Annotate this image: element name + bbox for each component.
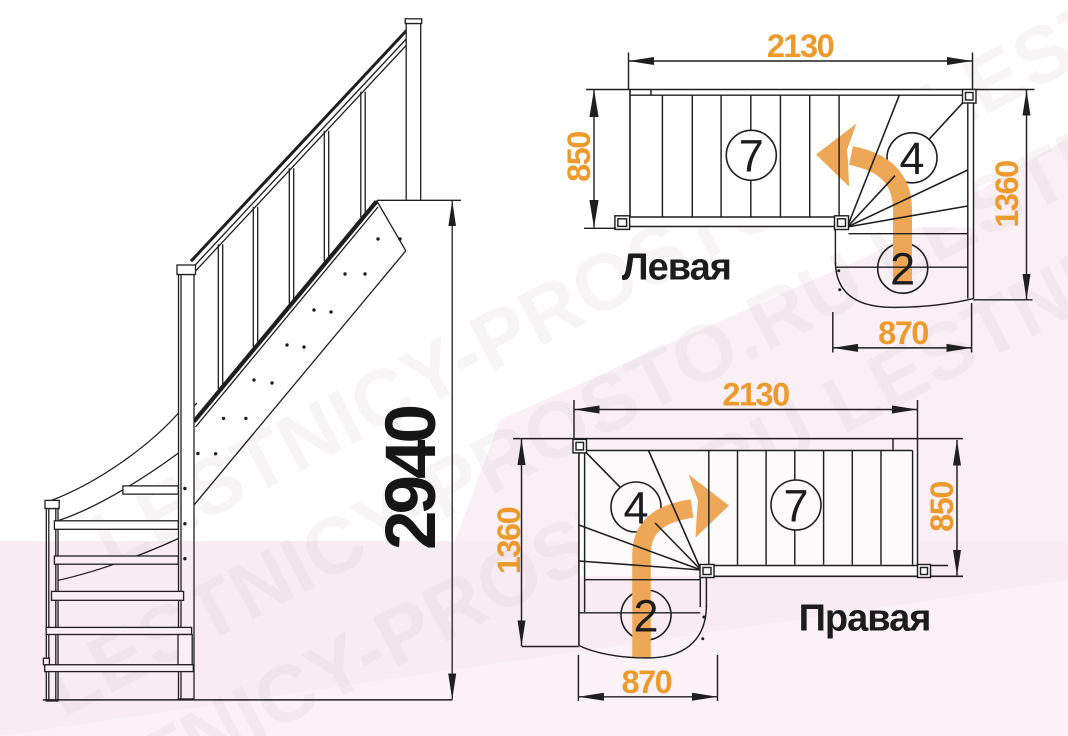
svg-text:850: 850 — [561, 132, 597, 182]
svg-text:850: 850 — [924, 482, 960, 532]
svg-text:2940: 2940 — [372, 407, 451, 550]
svg-text:Правая: Правая — [799, 598, 931, 640]
svg-text:Левая: Левая — [622, 247, 731, 289]
svg-text:2: 2 — [633, 590, 658, 641]
svg-text:1360: 1360 — [491, 507, 527, 574]
svg-text:2: 2 — [890, 244, 915, 295]
svg-text:1360: 1360 — [989, 161, 1025, 228]
svg-text:870: 870 — [622, 664, 672, 700]
svg-text:4: 4 — [899, 133, 924, 184]
svg-text:7: 7 — [783, 480, 808, 531]
svg-text:4: 4 — [623, 482, 648, 533]
svg-text:2130: 2130 — [722, 377, 789, 413]
svg-text:7: 7 — [739, 131, 764, 182]
svg-text:2130: 2130 — [767, 28, 834, 64]
svg-text:870: 870 — [878, 315, 928, 351]
